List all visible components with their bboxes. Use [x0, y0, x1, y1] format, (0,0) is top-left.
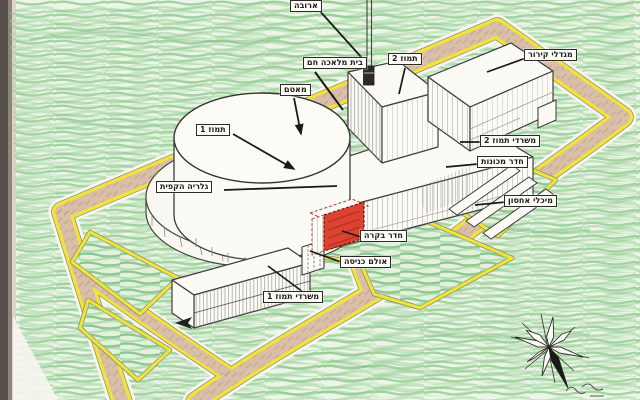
label-entrance-hall: אולם כניסה: [340, 256, 391, 268]
label-tammuz2: תמוז 2: [388, 53, 422, 65]
scanned-site-diagram: ארובה בית מלאכה חם תמוז 2 מגדלי קירור מא…: [0, 0, 640, 400]
label-perimeter-gallery: גלריה הקפית: [156, 181, 212, 193]
label-storage-tanks: מיכלי אחסון: [504, 195, 557, 207]
label-chimney: ארובה: [290, 0, 322, 12]
label-tammuz2-offices: משרדי תמוז 2: [480, 135, 540, 147]
scan-edge: [0, 0, 8, 400]
label-control-room: חדר בקרה: [360, 230, 407, 242]
label-machine-room: חדר מכונות: [477, 156, 528, 168]
label-dome-top: מאטם: [280, 84, 311, 96]
label-tammuz1: תמוז 1: [196, 124, 230, 136]
label-hot-workshop: בית מלאכה חם: [303, 57, 367, 69]
label-tammuz1-offices: משרדי תמוז 1: [263, 291, 323, 303]
label-cooling-towers: מגדלי קירור: [524, 49, 577, 61]
